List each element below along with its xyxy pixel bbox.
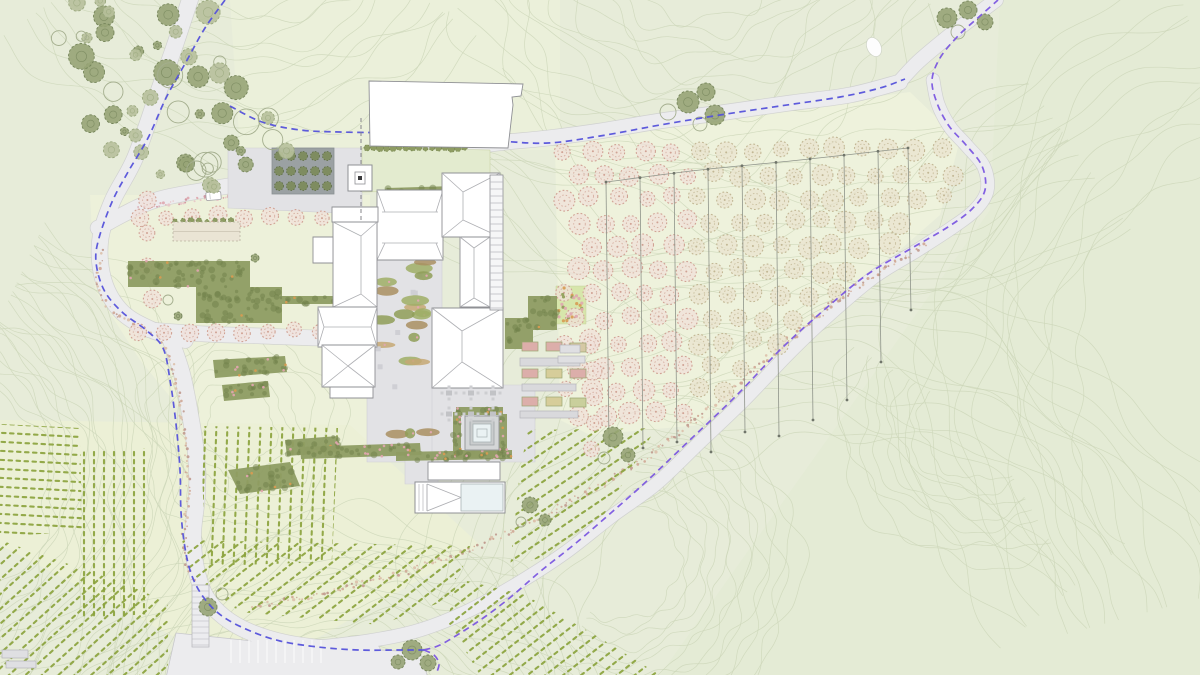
building-southeast-block bbox=[432, 308, 503, 388]
raised-bed bbox=[546, 342, 562, 351]
planter-bar bbox=[522, 384, 576, 391]
shed bbox=[558, 356, 585, 363]
shed bbox=[2, 650, 28, 658]
terrace-table bbox=[468, 391, 474, 396]
building-pool-hall-upper bbox=[428, 462, 500, 480]
raised-bed bbox=[522, 369, 538, 378]
building-west-cap bbox=[332, 207, 378, 222]
building-west-tower-block bbox=[333, 222, 377, 307]
veranda-strip bbox=[490, 175, 503, 310]
shed bbox=[6, 661, 36, 668]
terrace-table bbox=[490, 391, 496, 396]
building-north-hall bbox=[369, 81, 523, 148]
building-west-annex bbox=[313, 237, 333, 263]
terrace-table bbox=[446, 412, 452, 417]
water-basin bbox=[473, 424, 491, 442]
swimming-pool bbox=[461, 484, 503, 511]
shed bbox=[560, 345, 580, 353]
raised-bed bbox=[546, 397, 562, 406]
terrace-table bbox=[468, 412, 474, 417]
raised-bed bbox=[522, 397, 538, 406]
raised-bed bbox=[522, 342, 538, 351]
building-west-south-porch bbox=[330, 387, 373, 398]
raised-bed bbox=[570, 369, 586, 378]
terrace-table bbox=[446, 391, 452, 396]
raised-bed bbox=[546, 369, 562, 378]
planter-bar bbox=[520, 411, 578, 418]
terrace-table bbox=[490, 412, 496, 417]
site-plan-page bbox=[0, 0, 1200, 675]
raised-bed bbox=[570, 398, 586, 407]
building-main-north-block bbox=[377, 190, 443, 260]
site-plan-drawing bbox=[0, 0, 1200, 675]
